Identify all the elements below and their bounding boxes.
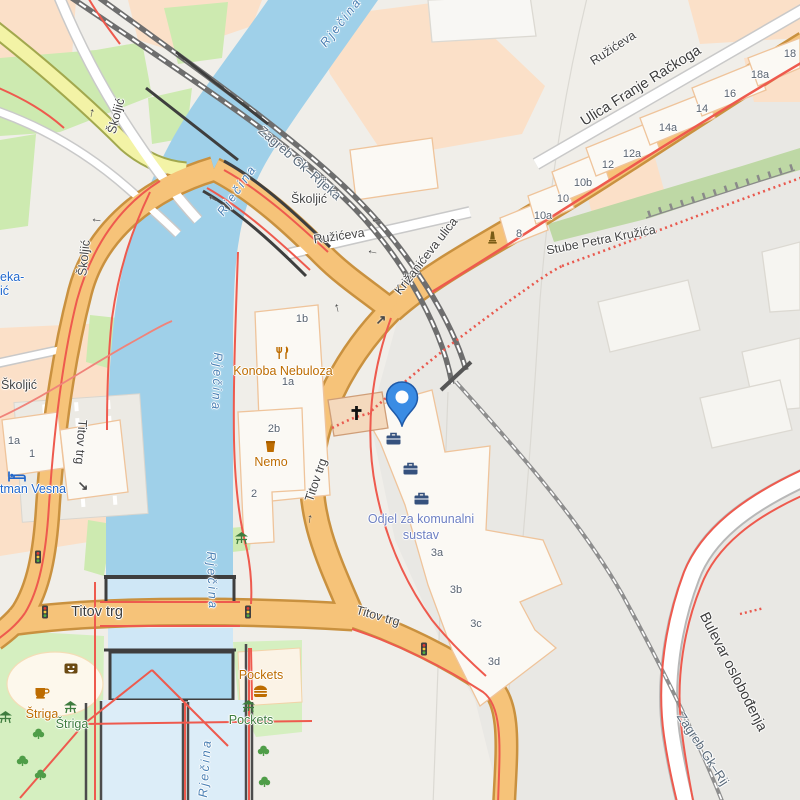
cafe-terrace-area xyxy=(7,652,103,716)
location-pin-icon[interactable] xyxy=(385,381,419,432)
map-canvas[interactable]: ŠkoljićŠkoljićŠkoljićŠkoljićRužićevaRuži… xyxy=(0,0,800,800)
pockets-terrace-area xyxy=(238,648,302,706)
